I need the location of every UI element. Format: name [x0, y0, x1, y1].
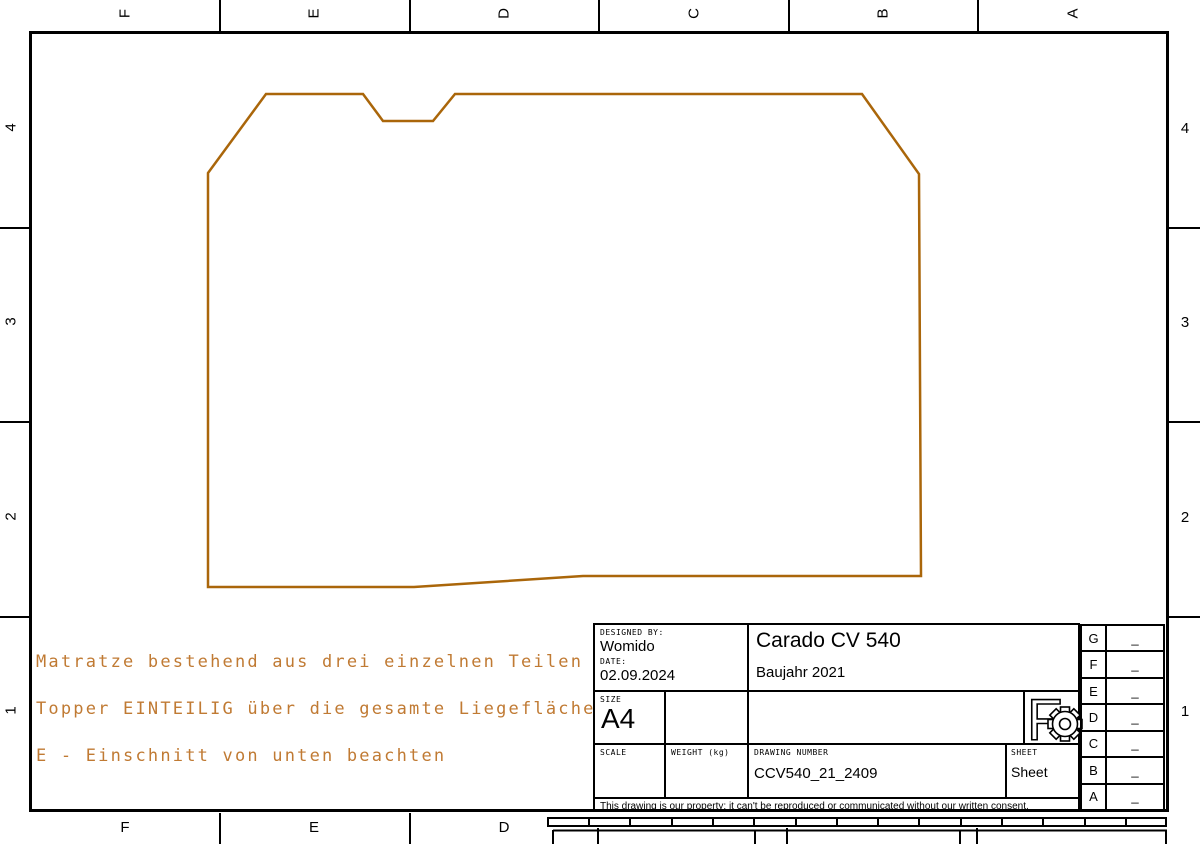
revision-letter: F: [1082, 652, 1107, 676]
revision-letter: B: [1082, 758, 1107, 782]
title-block: DESIGNED BY: Womido DATE: 02.09.2024 Car…: [593, 623, 1080, 811]
revision-letter: E: [1082, 679, 1107, 703]
zone-label-top: C: [687, 4, 702, 24]
zone-tick-top: [788, 0, 790, 33]
title-block-divider: [664, 690, 666, 799]
revision-value: _: [1107, 626, 1163, 650]
revision-letter: G: [1082, 626, 1107, 650]
revision-row: A _: [1082, 785, 1163, 809]
zone-label-bottom: D: [494, 820, 514, 835]
revision-letter: A: [1082, 785, 1107, 809]
title-block-divider: [1005, 743, 1007, 799]
title-block-divider: [747, 625, 749, 799]
scale-ruler: [548, 817, 1167, 844]
drawing-sheet: F E D C B A F E D 4 3 2 1 4 3 2 1 Matrat…: [0, 0, 1200, 844]
revision-value: _: [1107, 652, 1163, 676]
zone-tick-bottom: [219, 813, 221, 844]
annotation-line-2: Topper EINTEILIG über die gesamte Liegef…: [36, 699, 596, 719]
zone-tick-left: [0, 616, 30, 618]
zone-label-bottom: E: [304, 820, 324, 835]
zone-label-top: D: [497, 4, 512, 24]
scale-label: SCALE: [600, 748, 627, 757]
zone-tick-top: [977, 0, 979, 33]
zone-label-bottom: F: [115, 820, 135, 835]
zone-label-right: 2: [1175, 510, 1195, 525]
zone-tick-top: [219, 0, 221, 33]
revision-value: _: [1107, 758, 1163, 782]
sheet-label: SHEET: [1011, 748, 1038, 757]
annotation-line-3: E - Einschnitt von unten beachten: [36, 746, 446, 766]
size-value: A4: [601, 703, 635, 735]
revision-value: _: [1107, 732, 1163, 756]
revision-value: _: [1107, 679, 1163, 703]
gear-icon: [1048, 707, 1082, 741]
zone-label-top: F: [118, 4, 133, 24]
date-label: DATE:: [600, 657, 627, 666]
zone-label-left: 1: [4, 701, 19, 721]
zone-label-right: 1: [1175, 704, 1195, 719]
zone-label-right: 4: [1175, 121, 1195, 136]
zone-label-left: 2: [4, 507, 19, 527]
drawing-number-value: CCV540_21_2409: [754, 765, 877, 782]
zone-label-top: B: [876, 4, 891, 24]
zone-tick-right: [1166, 227, 1200, 229]
designed-by-label: DESIGNED BY:: [600, 628, 664, 637]
date-value: 02.09.2024: [600, 667, 675, 684]
title-block-divider: [595, 690, 1078, 692]
revision-row: G _: [1082, 626, 1163, 652]
revision-row: C _: [1082, 732, 1163, 758]
zone-label-right: 3: [1175, 315, 1195, 330]
revision-row: B _: [1082, 758, 1163, 784]
revision-value: _: [1107, 785, 1163, 809]
revision-row: D _: [1082, 705, 1163, 731]
zone-tick-right: [1166, 421, 1200, 423]
drawing-number-label: DRAWING NUMBER: [754, 748, 828, 757]
zone-tick-left: [0, 421, 30, 423]
sheet-value: Sheet: [1011, 764, 1048, 780]
zone-label-top: E: [307, 4, 322, 24]
weight-label: WEIGHT (kg): [671, 748, 729, 757]
legal-notice: This drawing is our property; it can't b…: [600, 801, 1029, 812]
annotation-line-1: Matratze bestehend aus drei einzelnen Te…: [36, 652, 583, 672]
revision-row: E _: [1082, 679, 1163, 705]
zone-tick-bottom: [409, 813, 411, 844]
revision-table: G _ F _ E _ D _ C _ B _ A _: [1080, 624, 1165, 811]
revision-value: _: [1107, 705, 1163, 729]
drawing-title: Carado CV 540: [756, 629, 901, 653]
revision-letter: D: [1082, 705, 1107, 729]
revision-letter: C: [1082, 732, 1107, 756]
designed-by-value: Womido: [600, 638, 655, 655]
zone-tick-right: [1166, 616, 1200, 618]
revision-row: F _: [1082, 652, 1163, 678]
zone-label-left: 3: [4, 312, 19, 332]
zone-label-left: 4: [4, 118, 19, 138]
zone-tick-top: [409, 0, 411, 33]
drawing-subtitle: Baujahr 2021: [756, 664, 845, 681]
freecad-logo-icon: F: [1025, 693, 1083, 745]
zone-label-top: A: [1066, 4, 1081, 24]
zone-tick-top: [598, 0, 600, 33]
zone-tick-left: [0, 227, 30, 229]
